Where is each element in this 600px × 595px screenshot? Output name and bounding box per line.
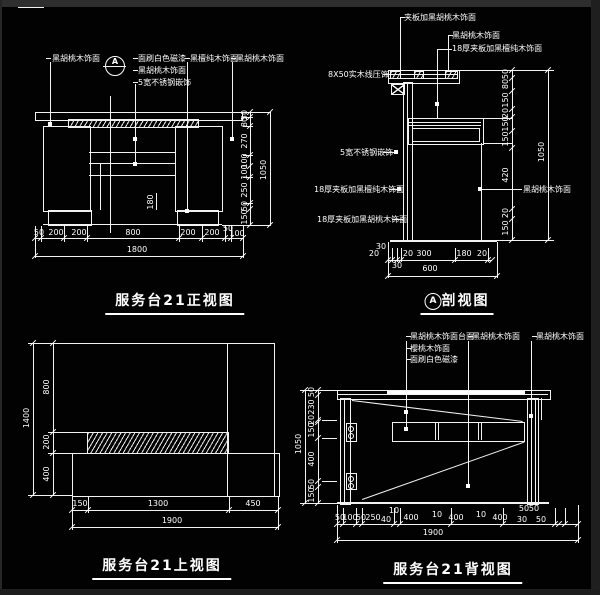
dim-label: 150 (502, 220, 510, 235)
top-view-title: 服务台21上视图 (92, 555, 231, 580)
dim-line (305, 390, 306, 503)
window-bottom-edge (0, 589, 600, 595)
dim-label: 50 (536, 516, 546, 524)
dim-label: 10 (389, 507, 399, 515)
dim-line (270, 112, 271, 225)
dim-label: 100 (229, 230, 244, 238)
leader-line (133, 58, 138, 59)
line (409, 122, 481, 123)
extension-line (322, 438, 337, 439)
floor-line (337, 502, 549, 504)
section-marker-line (103, 66, 126, 67)
dim-total-label: 1900 (162, 517, 182, 525)
leader-line (133, 70, 138, 71)
dim-label: 400 (448, 514, 463, 522)
counter-strip (387, 391, 525, 394)
extension-line (64, 226, 65, 242)
marker-square (230, 137, 234, 141)
dim-label: 50 (519, 505, 529, 513)
leader-line (468, 341, 469, 486)
material-label: 黑檀纯木饰面 (190, 55, 238, 63)
dim-line (337, 540, 578, 541)
marker-square (133, 137, 137, 141)
line (352, 400, 523, 422)
floor-line (390, 240, 497, 242)
dim-label: 800 (43, 379, 51, 394)
dim-line (72, 510, 278, 511)
handle-circle (348, 476, 354, 482)
dim-label: 40 (381, 516, 391, 524)
left-cabinet-outline (43, 126, 91, 212)
dim-label: 150 (308, 487, 316, 502)
material-label: 黑胡桃木饰面 (138, 67, 186, 75)
leader-line (392, 219, 404, 220)
dim-sub-label: 30 (392, 262, 402, 270)
back-view-title: 服务台21背视图 (383, 559, 522, 584)
dim-line (512, 70, 513, 240)
dim-label: 1300 (148, 500, 168, 508)
hatch-panel (87, 432, 229, 454)
leader-line (531, 341, 532, 417)
material-label: 8X50实木线压饰 (328, 71, 389, 79)
marker-square (394, 150, 398, 154)
dim-label: 80 (241, 117, 249, 127)
shelf-line (89, 163, 175, 164)
dim-label: 180 (456, 250, 471, 258)
dim-label: 400 (492, 514, 507, 522)
line (535, 398, 536, 503)
dim-line (548, 70, 549, 240)
dim-label: 180 (147, 194, 155, 209)
window-top-bar (0, 0, 600, 7)
marker-square (185, 209, 189, 213)
shelf-line (89, 152, 175, 153)
material-label: 5宽不锈钢嵌饰 (138, 79, 191, 87)
material-label: 夹板加黑胡桃木饰面 (404, 14, 476, 22)
leader-line (406, 336, 411, 337)
material-label: 18厚夹板加黑檀纯木饰面 (314, 186, 404, 194)
drawer-divider (435, 422, 436, 440)
dim-label: 10 (476, 511, 486, 519)
dim-label: 200 (43, 434, 51, 449)
dim-line (35, 256, 243, 257)
dim-label: 20 (403, 250, 413, 258)
top-view-base-outline (72, 453, 280, 497)
line (18, 7, 44, 8)
leader-line (437, 49, 452, 50)
dim-label: 200 (204, 229, 219, 237)
dim-label: 150 (308, 422, 316, 437)
dim-label: 20 (369, 250, 379, 258)
hatch-panel (445, 71, 458, 79)
dim-tick (240, 253, 246, 259)
line (338, 394, 548, 395)
marker-square (478, 187, 482, 191)
section-cut-line (110, 96, 111, 233)
dim-label: 30 (517, 516, 527, 524)
dim-label: 50 (502, 69, 510, 79)
drawer-band-outline (392, 422, 525, 442)
material-label: 18厚夹板加黑檀纯木饰面 (452, 45, 542, 53)
leader-line (231, 58, 236, 59)
marker-square (397, 187, 401, 191)
drawer-divider (438, 422, 439, 440)
marker-square (404, 427, 408, 431)
dim-label: 80 (502, 79, 510, 89)
dim-label: 30 (376, 243, 386, 251)
leader-line (46, 58, 51, 59)
leader-line (406, 359, 411, 360)
dim-label: 150 (502, 92, 510, 107)
leader-line (406, 348, 411, 349)
shelf-line (89, 175, 175, 176)
dim-label: 100 (241, 164, 249, 179)
leader-line (135, 84, 136, 165)
material-label: 面刷白色磁漆 (410, 356, 458, 364)
leader-line (185, 58, 190, 59)
line (344, 398, 345, 503)
front-view-title: 服务台21正视图 (105, 290, 244, 315)
extension-line (28, 343, 227, 344)
dim-total-label: 1900 (423, 529, 443, 537)
material-label: 黑胡桃木饰面 (52, 55, 100, 63)
section-view-title: 剖视图 (442, 293, 490, 309)
handle-circle (348, 433, 354, 439)
leader-line (50, 62, 51, 123)
dim-line (72, 527, 278, 528)
dim-label: 150 (502, 116, 510, 131)
dim-total-label: 1400 (23, 408, 31, 428)
dim-label: 200 (71, 229, 86, 237)
marker-square (466, 484, 470, 488)
dim-label: 200 (48, 229, 63, 237)
dim-label: 250 (241, 182, 249, 197)
dim-tick (267, 222, 273, 228)
leader-line (232, 62, 233, 140)
leader-line (481, 189, 522, 190)
dim-label: 400 (43, 466, 51, 481)
window-left-edge (0, 0, 2, 595)
dim-label: 270 (241, 133, 249, 148)
material-label: 樱桃木饰面 (410, 345, 450, 353)
leader-line (133, 82, 138, 83)
dim-label: 200 (180, 229, 195, 237)
dim-label: 250 (365, 514, 380, 522)
leader-line (437, 49, 438, 118)
material-label: 18厚夹板加黑胡桃木饰面 (317, 216, 407, 224)
dim-total-label: 1800 (127, 246, 147, 254)
dim-tick (494, 273, 500, 279)
material-label: 面刷白色磁漆 (138, 55, 186, 63)
leader-line (448, 35, 449, 70)
dim-label: 10 (432, 511, 442, 519)
dim-line (53, 343, 54, 495)
window-right-edge (591, 0, 600, 595)
section-marker-letter: A (112, 57, 118, 66)
extension-line (322, 481, 337, 482)
marker-square (404, 410, 408, 414)
section-view-title-group: A剖视图 (421, 290, 494, 315)
dim-line (388, 276, 497, 277)
drawer-divider (481, 422, 482, 440)
leader-line (383, 74, 390, 75)
material-label: 黑胡桃木饰面 (452, 32, 500, 40)
right-cabinet-outline (175, 126, 223, 212)
material-label: 5宽不锈钢嵌饰 (340, 149, 393, 157)
marker-square (435, 102, 439, 106)
handle-circle (348, 483, 354, 489)
dim-total-label: 1050 (538, 142, 546, 162)
marker-square (48, 122, 52, 126)
dim-label: 450 (245, 500, 260, 508)
leader-line (532, 336, 537, 337)
leader-line (400, 17, 401, 70)
line (541, 398, 542, 420)
hatch-panel (414, 71, 424, 79)
extension-line (87, 226, 88, 242)
dim-line (156, 193, 157, 210)
dim-line (337, 524, 578, 525)
dim-total-label: 600 (422, 265, 437, 273)
material-label: 黑胡桃木饰面 (236, 55, 284, 63)
dim-label: 150 (241, 209, 249, 224)
dim-line (35, 238, 243, 239)
material-label: 黑胡桃木饰面台面 (410, 333, 474, 341)
dim-line (388, 260, 492, 261)
material-label: 黑胡桃木饰面 (523, 186, 571, 194)
line (362, 442, 524, 500)
dim-label: 800 (125, 229, 140, 237)
extension-line (202, 226, 203, 242)
dim-total-label: 1050 (260, 160, 268, 180)
dim-total-label: 1050 (295, 434, 303, 454)
dim-label: 400 (308, 451, 316, 466)
dim-line (33, 343, 34, 495)
dim-label: 150 (72, 500, 87, 508)
hatch-panel (390, 71, 401, 79)
dim-label: 400 (403, 514, 418, 522)
dim-label: 20 (477, 250, 487, 258)
leader-line (406, 341, 407, 430)
line (412, 128, 480, 142)
base-line (43, 224, 222, 225)
material-label: 黑胡桃木饰面 (472, 333, 520, 341)
dim-label: 230 (308, 399, 316, 414)
dim-label: 50 (308, 387, 316, 397)
dim-label: 150 (502, 131, 510, 146)
line (409, 125, 481, 126)
extension-line (322, 420, 337, 421)
dim-label: 50 (34, 229, 44, 237)
section-title-marker: A (425, 293, 442, 310)
handle-circle (348, 426, 354, 432)
dim-label: 20 (502, 208, 510, 218)
dim-label: 50 (529, 505, 539, 513)
leader-line (468, 336, 473, 337)
line (481, 143, 482, 240)
panel-line (100, 163, 101, 210)
material-label: 黑胡桃木饰面 (536, 333, 584, 341)
drawer-divider (478, 422, 479, 440)
marker-square (529, 414, 533, 418)
dim-label: 420 (502, 167, 510, 182)
dim-label: 300 (416, 250, 431, 258)
marker-square (133, 162, 137, 166)
